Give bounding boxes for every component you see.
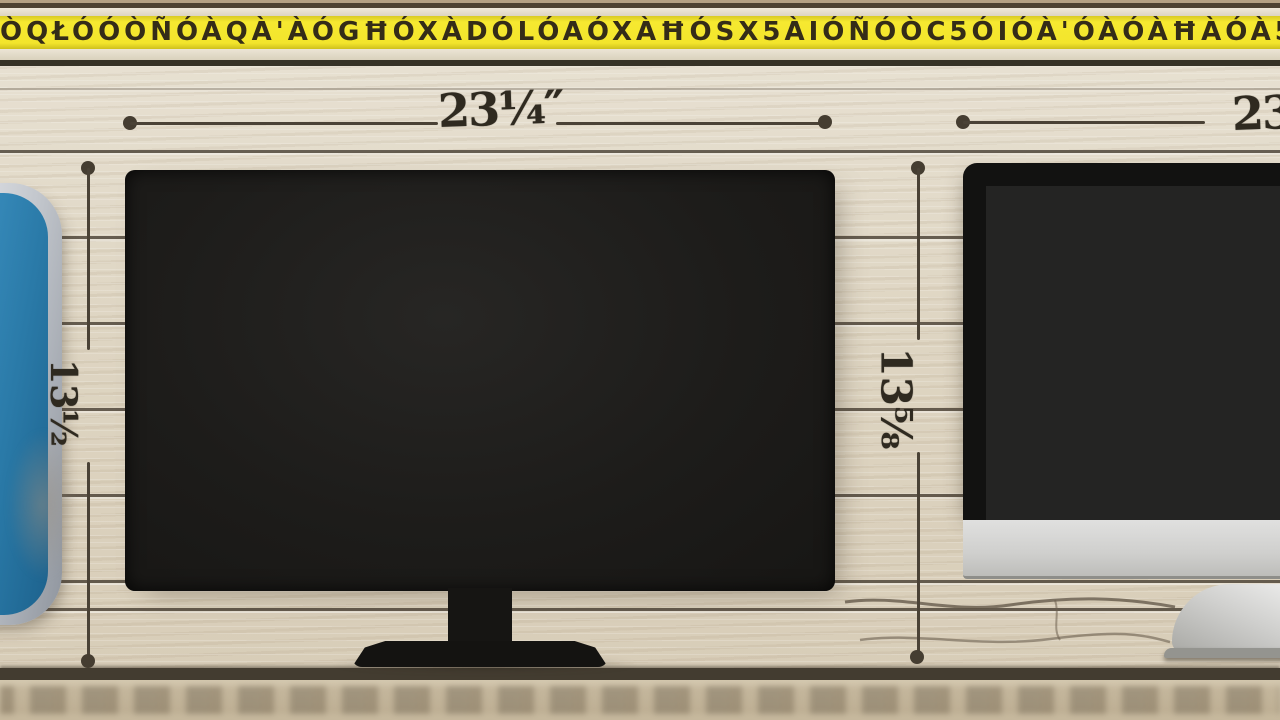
dimension-line xyxy=(917,452,920,654)
dimension-endpoint-dot xyxy=(818,115,832,129)
tape-body-bottom xyxy=(0,49,1280,60)
wood-speckle-band xyxy=(0,686,1280,714)
dimension-endpoint-dot xyxy=(910,650,924,664)
left-monitor-stand-base xyxy=(352,641,608,667)
wood-plank-line xyxy=(0,150,1280,153)
dimension-line xyxy=(556,122,826,125)
left-monitor-screen xyxy=(125,170,835,591)
dimension-line xyxy=(130,122,438,125)
dimension-line xyxy=(87,168,90,350)
table-front-edge xyxy=(0,668,1280,680)
left-monitor-stand-neck xyxy=(448,588,512,650)
left-monitor-height-label: 13½ xyxy=(42,348,84,458)
tape-yellow-band: ÒQŁÓÓÒÑÓÀQÀ'ÀÓGĦÓXÀDÓLÓAÓXÀĦÓSX5ÀIÓÑÓÒC5… xyxy=(0,16,1280,49)
tape-markings: ÒQŁÓÓÒÑÓÀQÀ'ÀÓGĦÓXÀDÓLÓAÓXÀĦÓSX5ÀIÓÑÓÒC5… xyxy=(0,17,1280,47)
size-comparison-photo: ÒQŁÓÓÒÑÓÀQÀ'ÀÓGĦÓXÀDÓLÓAÓXÀĦÓSX5ÀIÓÑÓÒC5… xyxy=(0,0,1280,720)
tape-body-top xyxy=(0,8,1280,16)
right-monitor-screen xyxy=(986,186,1280,520)
right-monitor-width-label: 23 xyxy=(1211,84,1280,141)
wood-plank-line xyxy=(0,608,1280,611)
left-monitor-width-label: 23¼″ xyxy=(437,80,557,138)
dimension-line xyxy=(963,121,1205,124)
dimension-line xyxy=(917,168,920,340)
right-monitor-stand-foot-edge xyxy=(1164,648,1280,658)
right-monitor-height-label: 13⅝ xyxy=(872,339,921,459)
measuring-tape: ÒQŁÓÓÒÑÓÀQÀ'ÀÓGĦÓXÀDÓLÓAÓXÀĦÓSX5ÀIÓÑÓÒC5… xyxy=(0,0,1280,66)
tape-bottom-edge xyxy=(0,60,1280,66)
dimension-line xyxy=(87,462,90,658)
dimension-endpoint-dot xyxy=(81,654,95,668)
right-monitor-chin xyxy=(963,520,1280,579)
wood-plank-line xyxy=(0,88,1280,90)
